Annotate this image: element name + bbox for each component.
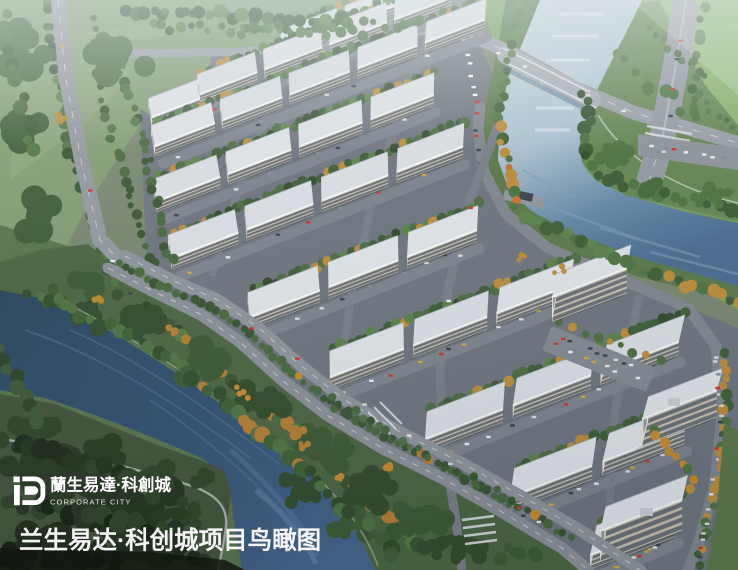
svg-text:蘭生易達·科創城: 蘭生易達·科創城 xyxy=(50,475,171,495)
svg-text:CORPORATE CITY: CORPORATE CITY xyxy=(50,498,132,507)
svg-text:兰生易达·科创城项目鸟瞰图: 兰生易达·科创城项目鸟瞰图 xyxy=(19,526,321,555)
